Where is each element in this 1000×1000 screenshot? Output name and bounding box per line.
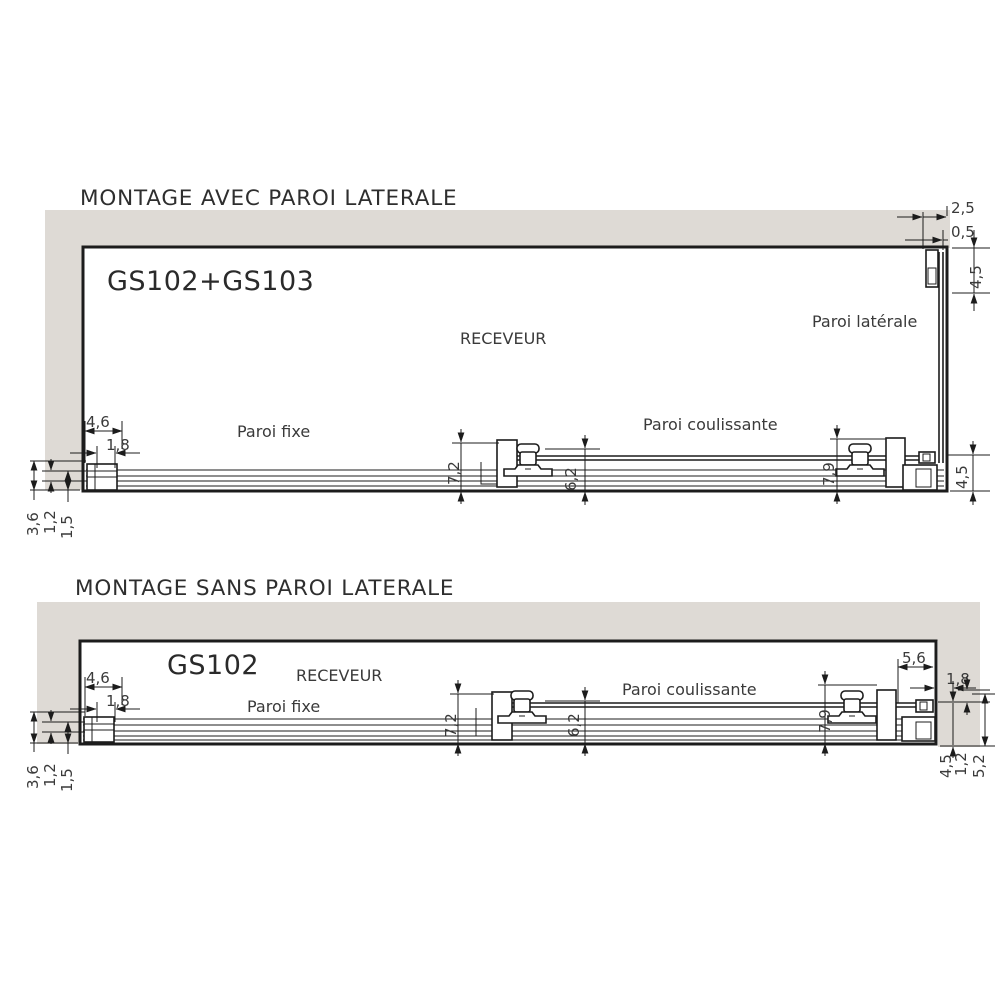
model-label-bottom: GS102 xyxy=(167,650,259,681)
dim-4-5-corner: 4,5 xyxy=(952,230,990,311)
svg-text:1,8: 1,8 xyxy=(106,436,130,454)
dim-left-stack-bottom: 3,6 1,2 1,5 xyxy=(24,710,85,792)
svg-text:3,6: 3,6 xyxy=(24,512,42,536)
diagram-avec-paroi-laterale: MONTAGE AVEC PAROI LATERALE GS102+GS103 … xyxy=(24,186,990,539)
svg-text:4,5: 4,5 xyxy=(967,265,985,289)
svg-text:4,6: 4,6 xyxy=(86,413,110,431)
svg-text:5,6: 5,6 xyxy=(902,649,926,667)
paroi-coulissante-label-top: Paroi coulissante xyxy=(643,415,778,434)
bottom-diagram-title: MONTAGE SANS PAROI LATERALE xyxy=(75,576,454,601)
svg-text:4,6: 4,6 xyxy=(86,669,110,687)
receveur-label-bottom: RECEVEUR xyxy=(296,666,382,685)
svg-text:1,8: 1,8 xyxy=(106,692,130,710)
svg-text:3,6: 3,6 xyxy=(24,765,42,789)
svg-text:7,2: 7,2 xyxy=(442,713,460,737)
svg-text:7,9: 7,9 xyxy=(820,462,838,486)
paroi-fixe-label-bottom: Paroi fixe xyxy=(247,697,320,716)
wall-profile-left-top xyxy=(87,464,117,490)
page: MONTAGE AVEC PAROI LATERALE GS102+GS103 … xyxy=(0,0,1000,1000)
wall-profile-left-bottom xyxy=(84,717,114,742)
model-label-top: GS102+GS103 xyxy=(107,266,314,297)
top-diagram-title: MONTAGE AVEC PAROI LATERALE xyxy=(80,186,457,211)
svg-text:6,2: 6,2 xyxy=(562,467,580,491)
svg-text:1,2: 1,2 xyxy=(952,752,970,776)
paroi-coulissante-label-bottom: Paroi coulissante xyxy=(622,680,757,699)
svg-text:4,5: 4,5 xyxy=(953,465,971,489)
dim-left-stack-top: 3,6 1,2 1,5 xyxy=(24,459,86,539)
svg-text:1,2: 1,2 xyxy=(41,763,59,787)
svg-text:1,5: 1,5 xyxy=(58,768,76,792)
svg-text:7,2: 7,2 xyxy=(445,461,463,485)
technical-diagram-canvas: MONTAGE AVEC PAROI LATERALE GS102+GS103 … xyxy=(0,0,1000,1000)
svg-text:1,2: 1,2 xyxy=(41,510,59,534)
diagram-sans-paroi-laterale: MONTAGE SANS PAROI LATERALE GS102 RECEVE… xyxy=(24,576,995,792)
svg-text:1,5: 1,5 xyxy=(58,515,76,539)
svg-text:1,8: 1,8 xyxy=(946,670,970,688)
dim-4-5-rail-top: 4,5 xyxy=(948,441,990,505)
svg-text:7,9: 7,9 xyxy=(816,709,834,733)
paroi-fixe-label-top: Paroi fixe xyxy=(237,422,310,441)
svg-text:0,5: 0,5 xyxy=(951,223,975,241)
svg-text:6,2: 6,2 xyxy=(565,713,583,737)
svg-text:2,5: 2,5 xyxy=(951,199,975,217)
receveur-label-top: RECEVEUR xyxy=(460,329,546,348)
svg-text:5,2: 5,2 xyxy=(970,754,988,778)
paroi-laterale-label: Paroi latérale xyxy=(812,312,917,331)
